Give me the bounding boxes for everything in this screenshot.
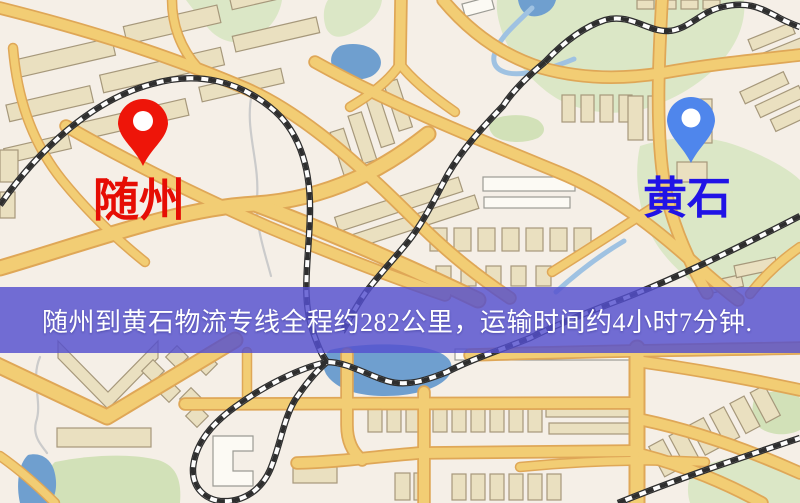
label-huangshi: 黄石 <box>643 174 731 223</box>
map-canvas[interactable]: 随州 黄石 <box>0 0 800 503</box>
route-info-banner: 随州到黄石物流专线全程约282公里，运输时间约4小时7分钟. <box>0 287 800 353</box>
map-screenshot: 随州 黄石 随州到黄石物流专线全程约282公里，运输时间约4小时7分钟. <box>0 0 800 503</box>
pin-hole <box>133 111 153 131</box>
route-info-text: 随州到黄石物流专线全程约282公里，运输时间约4小时7分钟. <box>0 302 753 339</box>
pin-hole <box>682 109 701 128</box>
label-suizhou: 随州 <box>93 175 185 226</box>
